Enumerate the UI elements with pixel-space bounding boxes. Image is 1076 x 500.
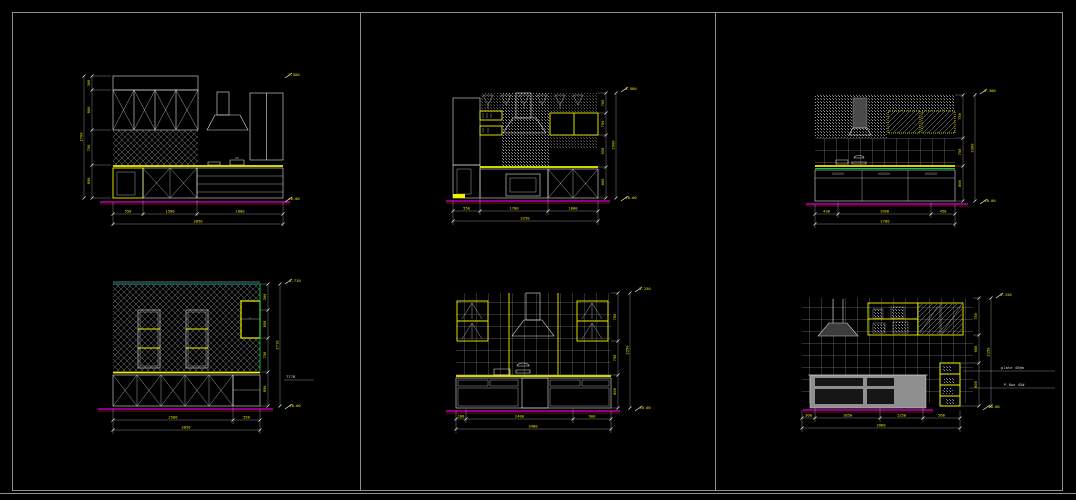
dim-label: 750 — [612, 354, 617, 362]
dim-label: 600 — [973, 345, 978, 353]
base-cabinet-left — [113, 168, 143, 198]
dim-label: 750 — [262, 351, 267, 359]
upper-stipple-right — [887, 95, 955, 111]
backsplash-hatch — [113, 130, 198, 165]
tile-wall — [456, 293, 611, 375]
level-marker-bottom: ±0.00 — [984, 198, 996, 203]
open-shelf-2 — [480, 126, 502, 135]
dim-total-label: 2250 — [625, 345, 630, 355]
level-marker-bottom: ±0.00 — [289, 403, 301, 408]
wall-cabinet-right — [241, 301, 260, 338]
elevation-4-drawing — [98, 282, 273, 411]
dim-label: 1800 — [235, 209, 245, 214]
base-door-x-pattern — [113, 375, 233, 406]
base-cabinet-left-door — [457, 169, 471, 194]
louver-tall-cabinet — [453, 98, 480, 165]
drawer-handle — [878, 173, 890, 176]
dim-label: 450 — [940, 209, 948, 214]
dim-label: 300 — [86, 79, 91, 87]
elevation-1-drawing — [100, 76, 290, 204]
base-cabinets — [456, 378, 611, 408]
frame-bottom-border — [12, 490, 1062, 491]
dim-label: 1000 — [568, 206, 578, 211]
dim-label: 750 — [957, 148, 962, 156]
dim-label: 430 — [823, 209, 831, 214]
dim-label: 750 — [86, 144, 91, 152]
dim-label: 260 — [262, 293, 267, 301]
dim-total-label: 3850 — [193, 219, 203, 224]
shelf-items — [483, 113, 491, 133]
dim-label: 1250 — [897, 413, 907, 418]
dim-label: 1850 — [843, 413, 853, 418]
elevation-panel-5: 700 750 800 2250 2.250 ±0.00 180 2400 90… — [428, 278, 668, 453]
base-drawers — [458, 378, 609, 408]
dim-label: 850 — [262, 385, 267, 393]
dim-total-label: 2150 — [986, 347, 991, 357]
elevation-panel-1: 300 800 750 850 2700 550 1500 1800 3850 … — [80, 68, 340, 243]
drawer-handle — [832, 173, 844, 176]
oven-glass — [510, 178, 536, 192]
leader-text-2: P.0wx 45# — [1004, 382, 1025, 387]
dim-label: 800 — [973, 380, 978, 388]
dim-total-label: 3050 — [181, 425, 191, 430]
level-marker-bottom: ±0.00 — [288, 196, 300, 201]
drawer-lines — [197, 176, 283, 192]
dim-label: 750 — [600, 120, 605, 128]
range-hood — [207, 115, 248, 130]
dim-label: 850 — [86, 177, 91, 185]
hood-duct — [853, 98, 867, 128]
elevation-5-drawing — [446, 293, 620, 413]
cookware — [208, 158, 244, 165]
elevation-3-drawing — [806, 95, 968, 206]
column-divider-1 — [360, 12, 361, 490]
hood-column-stipple — [502, 93, 550, 167]
level-marker-top: 2.580 — [625, 86, 637, 91]
level-marker-bottom: ±0.00 — [988, 404, 1000, 409]
dim-label: 300 — [805, 413, 813, 418]
oven — [506, 174, 540, 196]
plinth-accent — [453, 194, 465, 198]
dim-label: 900 — [589, 414, 597, 419]
hanging-plants — [550, 135, 598, 149]
dim-label: 750 — [957, 112, 962, 120]
elevation-6-drawing — [802, 298, 973, 412]
cad-canvas: 300 800 750 850 2700 550 1500 1800 3850 … — [0, 0, 1076, 500]
dim-label: 750 — [973, 312, 978, 320]
base-cabinet-left-door — [117, 172, 135, 195]
dim-label: 550 — [243, 415, 251, 420]
island-unit — [808, 375, 928, 408]
dim-total-label: 2900 — [611, 140, 616, 150]
glass-cabinet-1 — [888, 111, 920, 133]
level-marker-top: 2.580 — [288, 72, 300, 77]
frame-left-border — [12, 12, 13, 491]
base-open-shelf — [233, 375, 260, 406]
dim-label: 1700 — [509, 206, 519, 211]
level-marker-top: 2.150 — [1000, 292, 1012, 297]
dim-total-label: 3480 — [528, 424, 538, 429]
oven-base-stipple — [480, 169, 548, 198]
dim-label: 2500 — [168, 415, 178, 420]
level-marker-top: 2.300 — [984, 88, 996, 93]
base-door-x-pattern — [548, 169, 598, 198]
dim-label: 800 — [600, 178, 605, 186]
dim-label: 2400 — [515, 414, 525, 419]
elevation-panel-6: 750 600 800 2150 2.150 ±0.00 plate 45@m … — [773, 283, 1073, 458]
level-marker-bottom: ±0.00 — [625, 195, 637, 200]
column-divider-2 — [715, 12, 716, 490]
dim-label: 550 — [125, 209, 133, 214]
leader-text: 7778 — [286, 374, 296, 379]
elevation-2-drawing — [446, 93, 610, 203]
base-door-x-pattern — [143, 168, 197, 198]
dim-label: 650 — [600, 147, 605, 155]
dim-label: 850 — [262, 320, 267, 328]
soffit-hatch — [113, 76, 198, 90]
dim-label: 1900 — [880, 209, 890, 214]
drawer-handle — [925, 173, 937, 176]
elevation-panel-2: 700 750 650 800 2900 2.580 ±0.00 550 170… — [428, 78, 668, 253]
upper-door-x-pattern — [113, 90, 198, 130]
dim-label: 1500 — [165, 209, 175, 214]
dim-label: 800 — [86, 106, 91, 114]
dim-label: 180 — [458, 414, 466, 419]
open-shelf-tower — [940, 363, 960, 406]
frame-top-border — [12, 12, 1062, 13]
feature-wall-hatch — [113, 284, 260, 371]
dim-label: 800 — [612, 387, 617, 395]
upper-cabinet-dividers — [134, 90, 176, 130]
dim-total-label: 2300 — [970, 143, 975, 153]
dim-label: 560 — [938, 413, 946, 418]
level-marker-bottom: ±0.00 — [639, 405, 651, 410]
leader-text-1: plate 45@m — [1001, 365, 1025, 370]
dim-label: 700 — [612, 313, 617, 321]
upper-cabinets — [113, 90, 198, 130]
sheet-bottom-line — [0, 493, 1076, 494]
level-marker-top: 2.710 — [289, 278, 301, 283]
hood-duct — [217, 92, 229, 115]
dim-label: 800 — [957, 179, 962, 187]
dim-total-label: 3250 — [520, 216, 530, 221]
elevation-panel-4: 260 850 750 850 2710 7778 2.710 ±0.00 25… — [88, 268, 348, 453]
base-drawers — [197, 168, 283, 198]
dim-total-label: 2710 — [275, 340, 280, 350]
glass-cabinet-2 — [922, 111, 955, 133]
dim-total-label: 2780 — [880, 219, 890, 224]
dim-total-label: 2700 — [80, 132, 84, 142]
dim-label: 700 — [600, 99, 605, 107]
dim-total-label: 3960 — [876, 423, 886, 428]
dim-label: 550 — [463, 206, 471, 211]
elevation-panel-3: 750 750 800 2300 2.300 ±0.00 430 1900 45… — [788, 78, 1028, 253]
level-marker-top: 2.250 — [639, 286, 651, 291]
